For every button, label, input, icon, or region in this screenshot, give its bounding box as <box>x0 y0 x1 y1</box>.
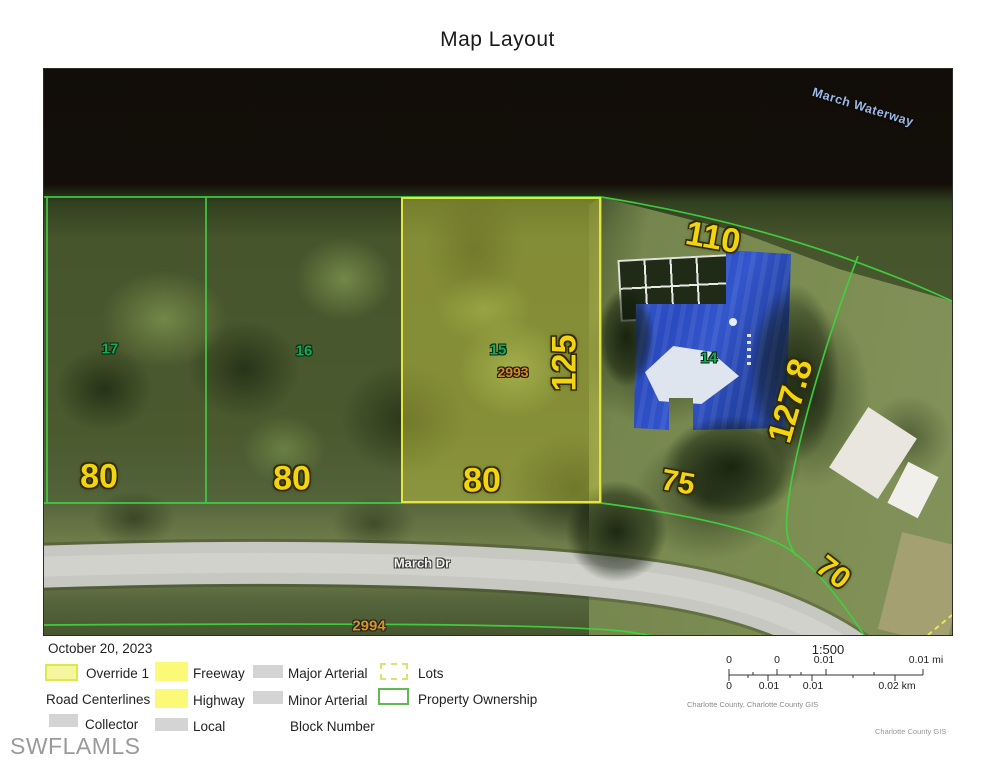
dimension-125: 125 <box>546 335 585 392</box>
map-canvas: March Waterway 17 16 15 14 2993 80 80 80… <box>43 68 953 636</box>
map-source-credit: Charlotte County, Charlotte County GIS <box>687 700 818 709</box>
scale-mi-tick: 0.01 <box>814 654 834 666</box>
legend-major-arterial: Major Arterial <box>288 666 368 681</box>
legend-road-centerlines: Road Centerlines <box>46 692 150 707</box>
scale-km-tick: 0 <box>726 680 732 692</box>
lot-number-15: 15 <box>490 342 507 359</box>
scale-mi-tick: 0 <box>726 654 732 666</box>
dimension-80-lot16: 80 <box>273 460 311 499</box>
legend-local: Local <box>193 719 225 734</box>
map-date: October 20, 2023 <box>48 641 152 656</box>
local-swatch <box>155 718 188 731</box>
legend-override: Override 1 <box>86 666 149 681</box>
scale-km-tick: 0.01 <box>759 680 779 692</box>
lot-number-17: 17 <box>102 341 119 358</box>
scale-km-tick: 0.02 km <box>878 680 915 692</box>
collector-swatch <box>49 714 78 727</box>
highway-swatch <box>155 689 188 708</box>
map-layout-page: Map Layout <box>0 0 995 768</box>
minor-arterial-swatch <box>253 691 283 704</box>
legend-minor-arterial: Minor Arterial <box>288 693 368 708</box>
lot-number-16: 16 <box>296 343 313 360</box>
legend-block-number: Block Number <box>290 719 375 734</box>
legend-property-ownership: Property Ownership <box>418 692 537 707</box>
property-ownership-swatch <box>378 688 409 705</box>
scale-mi-tick: 0 <box>774 654 780 666</box>
dimension-80-lot15: 80 <box>463 462 501 501</box>
scale-km-tick: 0.01 <box>803 680 823 692</box>
page-title: Map Layout <box>0 28 995 52</box>
legend-lots: Lots <box>418 666 444 681</box>
dimension-75: 75 <box>659 463 698 502</box>
freeway-swatch <box>155 662 188 681</box>
lots-swatch <box>380 663 408 680</box>
parcel-id-label: 2993 <box>497 364 528 380</box>
lot-number-14: 14 <box>701 350 718 367</box>
dimension-80-lot17: 80 <box>80 458 118 497</box>
watermark-swflamls: SWFLAMLS <box>10 733 141 760</box>
street-label: March Dr <box>394 556 450 571</box>
major-arterial-swatch <box>253 665 283 678</box>
block-number-2994: 2994 <box>352 618 385 635</box>
legend-collector: Collector <box>85 717 138 732</box>
lots-dashed-line <box>928 615 952 635</box>
override-swatch <box>45 664 78 681</box>
scale-mi-tick: 0.01 mi <box>909 654 943 666</box>
gis-credit: Charlotte County GIS <box>875 727 946 736</box>
legend-highway: Highway <box>193 693 245 708</box>
legend-freeway: Freeway <box>193 666 245 681</box>
